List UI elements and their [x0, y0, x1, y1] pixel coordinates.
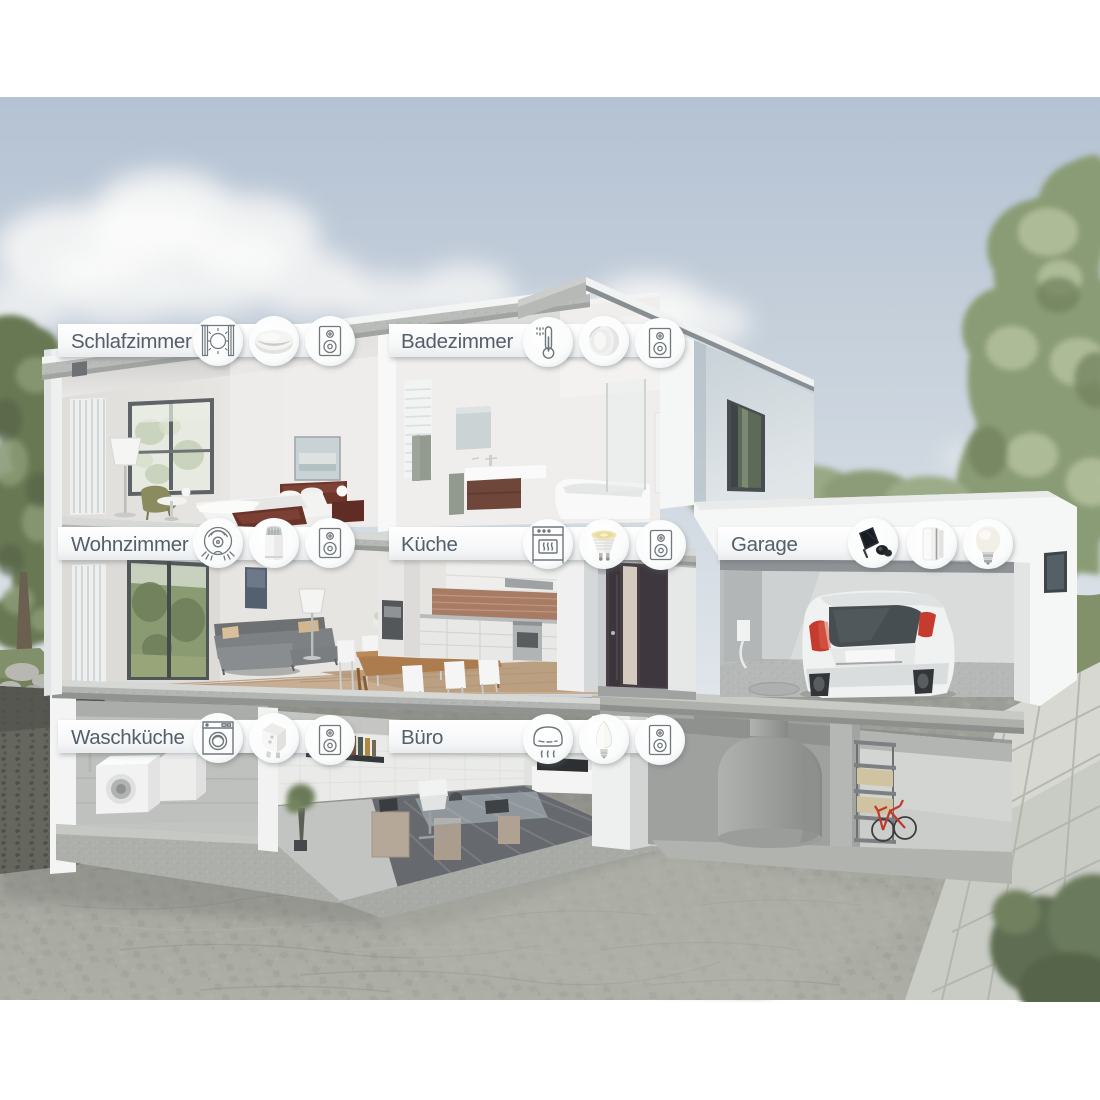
svg-text:Büro: Büro: [401, 726, 443, 749]
svg-text:Wohnzimmer: Wohnzimmer: [71, 533, 189, 556]
svg-text:Schlafzimmer: Schlafzimmer: [71, 330, 192, 353]
svg-text:Badezimmer: Badezimmer: [401, 330, 514, 353]
svg-text:Waschküche: Waschküche: [71, 726, 185, 749]
svg-text:Garage: Garage: [731, 533, 798, 556]
svg-text:Küche: Küche: [401, 533, 458, 556]
